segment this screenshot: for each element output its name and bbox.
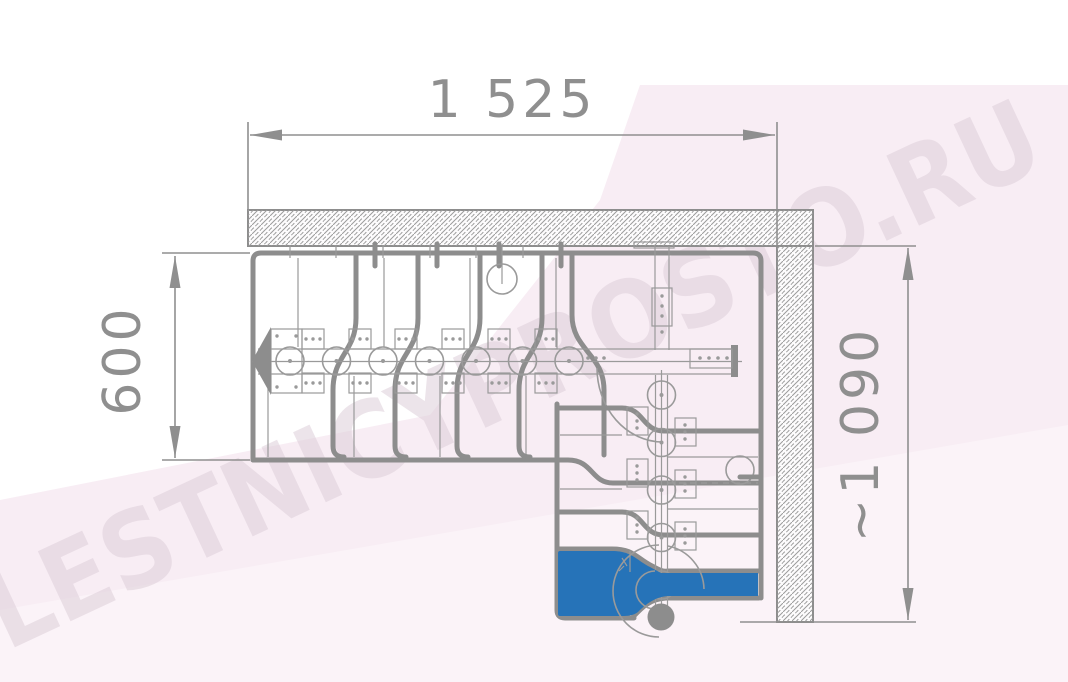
- plan-canvas: LESTNICYPROSTO.RU: [0, 0, 1068, 682]
- dimension-left-width: 600: [93, 253, 250, 460]
- right-wall: [777, 246, 813, 622]
- staircase-plan-drawing: LESTNICYPROSTO.RU: [0, 0, 1068, 682]
- newel-pole: [648, 604, 675, 631]
- dim-label-left: 600: [93, 304, 153, 415]
- top-wall: [248, 210, 813, 246]
- dim-label-right: ~1 090: [831, 326, 891, 542]
- dim-label-top: 1 525: [428, 70, 597, 130]
